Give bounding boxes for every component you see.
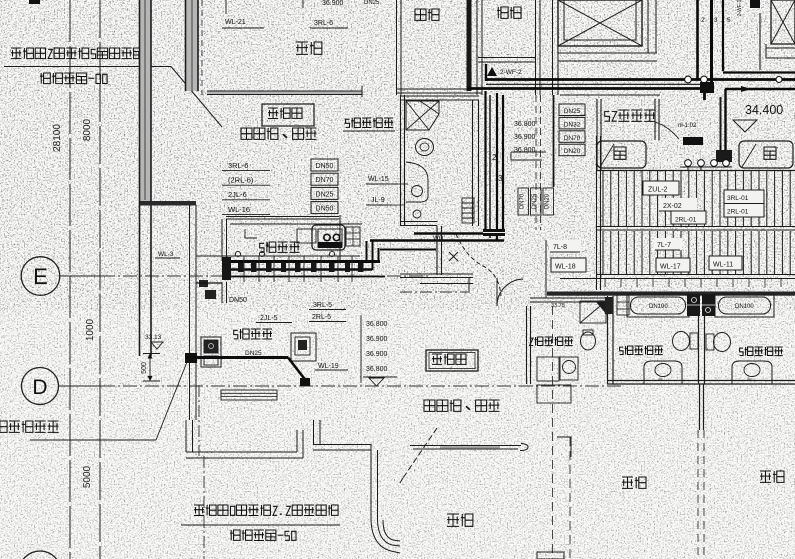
svg-text:DN70: DN70 <box>520 193 526 209</box>
svg-text:5000: 5000 <box>82 465 93 488</box>
svg-text:33.75: 33.75 <box>551 303 565 309</box>
svg-text:WO: WO <box>433 236 444 242</box>
svg-text:3RL-6: 3RL-6 <box>314 20 333 27</box>
svg-text:D: D <box>32 376 47 399</box>
svg-text:3: 3 <box>498 174 503 183</box>
svg-text:WL-15: WL-15 <box>368 176 389 183</box>
svg-text:DN25: DN25 <box>316 191 334 198</box>
svg-text:WL-16: WL-16 <box>228 205 250 214</box>
svg-text:7L-7: 7L-7 <box>657 242 671 249</box>
svg-text:2: 2 <box>701 17 705 24</box>
svg-text:DN20: DN20 <box>564 148 581 155</box>
svg-text:ZUL-2: ZUL-2 <box>648 187 668 194</box>
svg-text:36.900: 36.900 <box>366 336 388 343</box>
svg-text:WL-17: WL-17 <box>660 264 681 271</box>
svg-text:nl-1:02: nl-1:02 <box>678 123 697 129</box>
svg-text:DN50: DN50 <box>229 297 247 304</box>
svg-text:DN50: DN50 <box>316 163 334 170</box>
svg-text:1000: 1000 <box>85 318 96 341</box>
svg-text:2RL-01: 2RL-01 <box>727 209 749 216</box>
svg-text:8000: 8000 <box>82 118 93 141</box>
svg-text:DN25: DN25 <box>364 0 380 6</box>
svg-text:DN32: DN32 <box>564 121 581 128</box>
svg-text:DN100: DN100 <box>649 304 668 310</box>
svg-text:3: 3 <box>714 17 718 24</box>
svg-text:500: 500 <box>141 362 148 374</box>
svg-text:5: 5 <box>727 17 731 24</box>
svg-text:2JL-5: 2JL-5 <box>260 315 278 322</box>
svg-text:2RL-01: 2RL-01 <box>675 217 697 224</box>
svg-text:3RL-6: 3RL-6 <box>228 161 248 170</box>
svg-text:36.800: 36.800 <box>366 321 388 328</box>
svg-text:2: 2 <box>492 153 497 162</box>
svg-text:3RL-5: 3RL-5 <box>313 302 332 309</box>
svg-text:36.900: 36.900 <box>514 134 536 141</box>
svg-text:36.800: 36.800 <box>366 366 388 373</box>
svg-text:33.13: 33.13 <box>145 334 162 341</box>
svg-text:DN70: DN70 <box>564 135 581 142</box>
svg-text:7L-8: 7L-8 <box>553 244 567 251</box>
svg-text:DN20: DN20 <box>545 193 551 209</box>
svg-text:WL-11: WL-11 <box>713 262 733 269</box>
svg-text:DN25: DN25 <box>245 350 262 357</box>
svg-text:34.400: 34.400 <box>745 103 783 117</box>
svg-text:2-WF-1: 2-WF-1 <box>737 0 743 16</box>
svg-text:36.900: 36.900 <box>322 0 344 7</box>
svg-text:WL-18: WL-18 <box>555 264 576 271</box>
svg-text:ds: ds <box>747 377 753 382</box>
svg-text:DN70: DN70 <box>316 177 334 184</box>
svg-text:E: E <box>33 264 48 289</box>
svg-text:DN100: DN100 <box>735 304 754 310</box>
svg-text:2RL-5: 2RL-5 <box>312 314 331 321</box>
svg-text:DN50: DN50 <box>316 206 334 213</box>
svg-text:36.800: 36.800 <box>514 121 536 128</box>
svg-text:2X-02: 2X-02 <box>663 203 682 210</box>
svg-text:DN25: DN25 <box>532 193 538 209</box>
svg-text:JL-9: JL-9 <box>371 197 385 204</box>
svg-text:3RL-01: 3RL-01 <box>727 195 749 202</box>
svg-text:(2RL-6): (2RL-6) <box>228 176 254 185</box>
svg-text:ds: ds <box>658 377 664 382</box>
svg-text:36.900: 36.900 <box>366 351 388 358</box>
svg-text:36.800: 36.800 <box>514 147 536 154</box>
svg-text:WL-19: WL-19 <box>318 363 339 370</box>
svg-text:WL-21: WL-21 <box>225 19 246 26</box>
svg-text:2JL-6: 2JL-6 <box>228 190 247 199</box>
svg-text:DN25: DN25 <box>564 108 581 115</box>
svg-text:28100: 28100 <box>52 124 63 152</box>
svg-text:WL-3: WL-3 <box>158 251 174 258</box>
svg-text:2-WF-2: 2-WF-2 <box>500 69 522 76</box>
